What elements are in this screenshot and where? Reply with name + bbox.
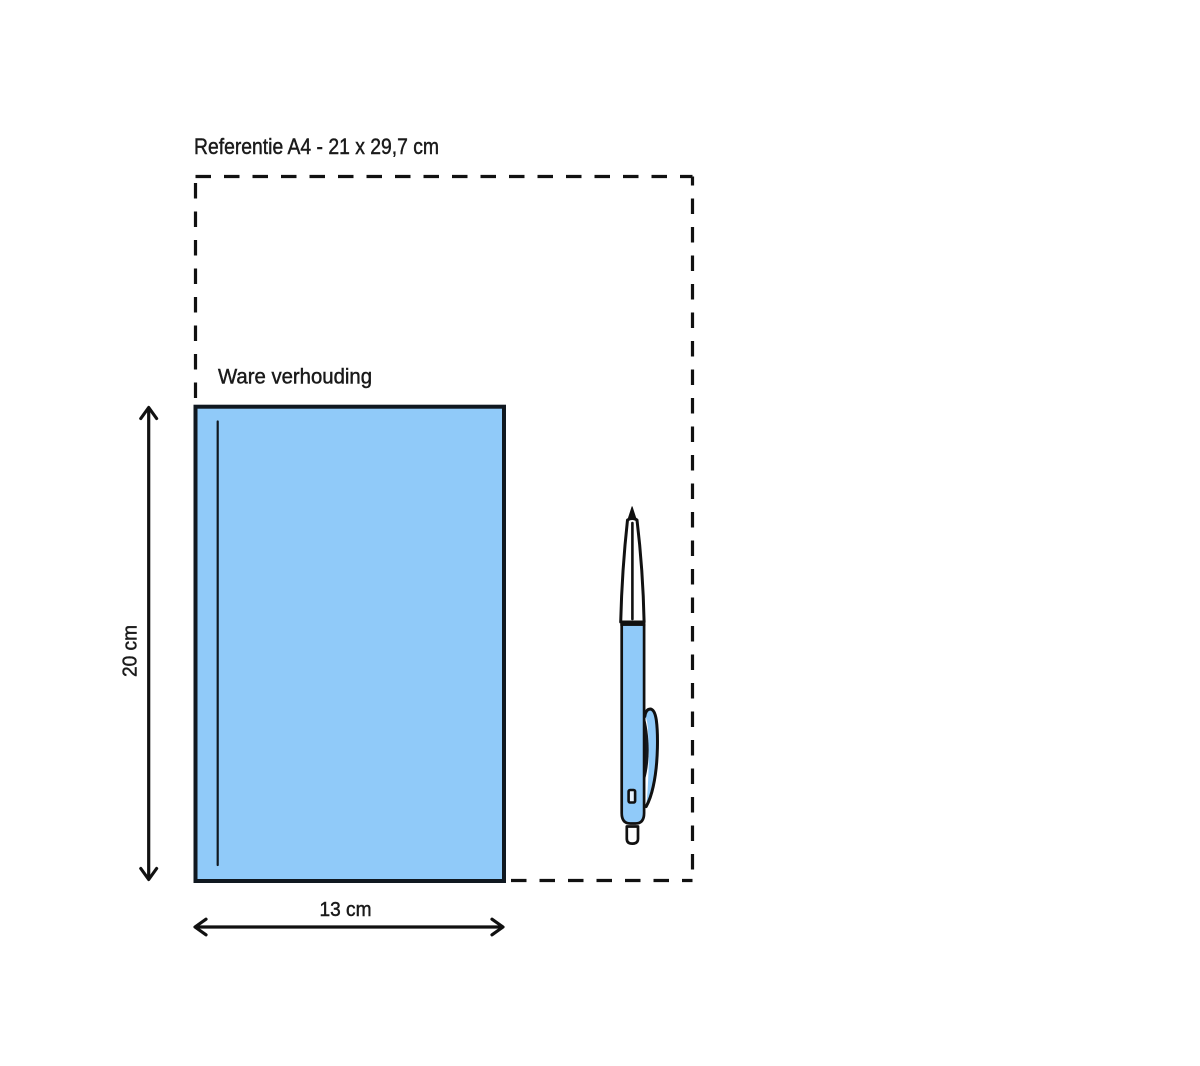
svg-text:20 cm: 20 cm: [120, 625, 142, 677]
svg-text:13 cm: 13 cm: [320, 899, 372, 921]
svg-text:Ware verhouding: Ware verhouding: [218, 366, 372, 389]
svg-text:Referentie A4 - 21 x 29,7 cm: Referentie A4 - 21 x 29,7 cm: [194, 134, 439, 159]
